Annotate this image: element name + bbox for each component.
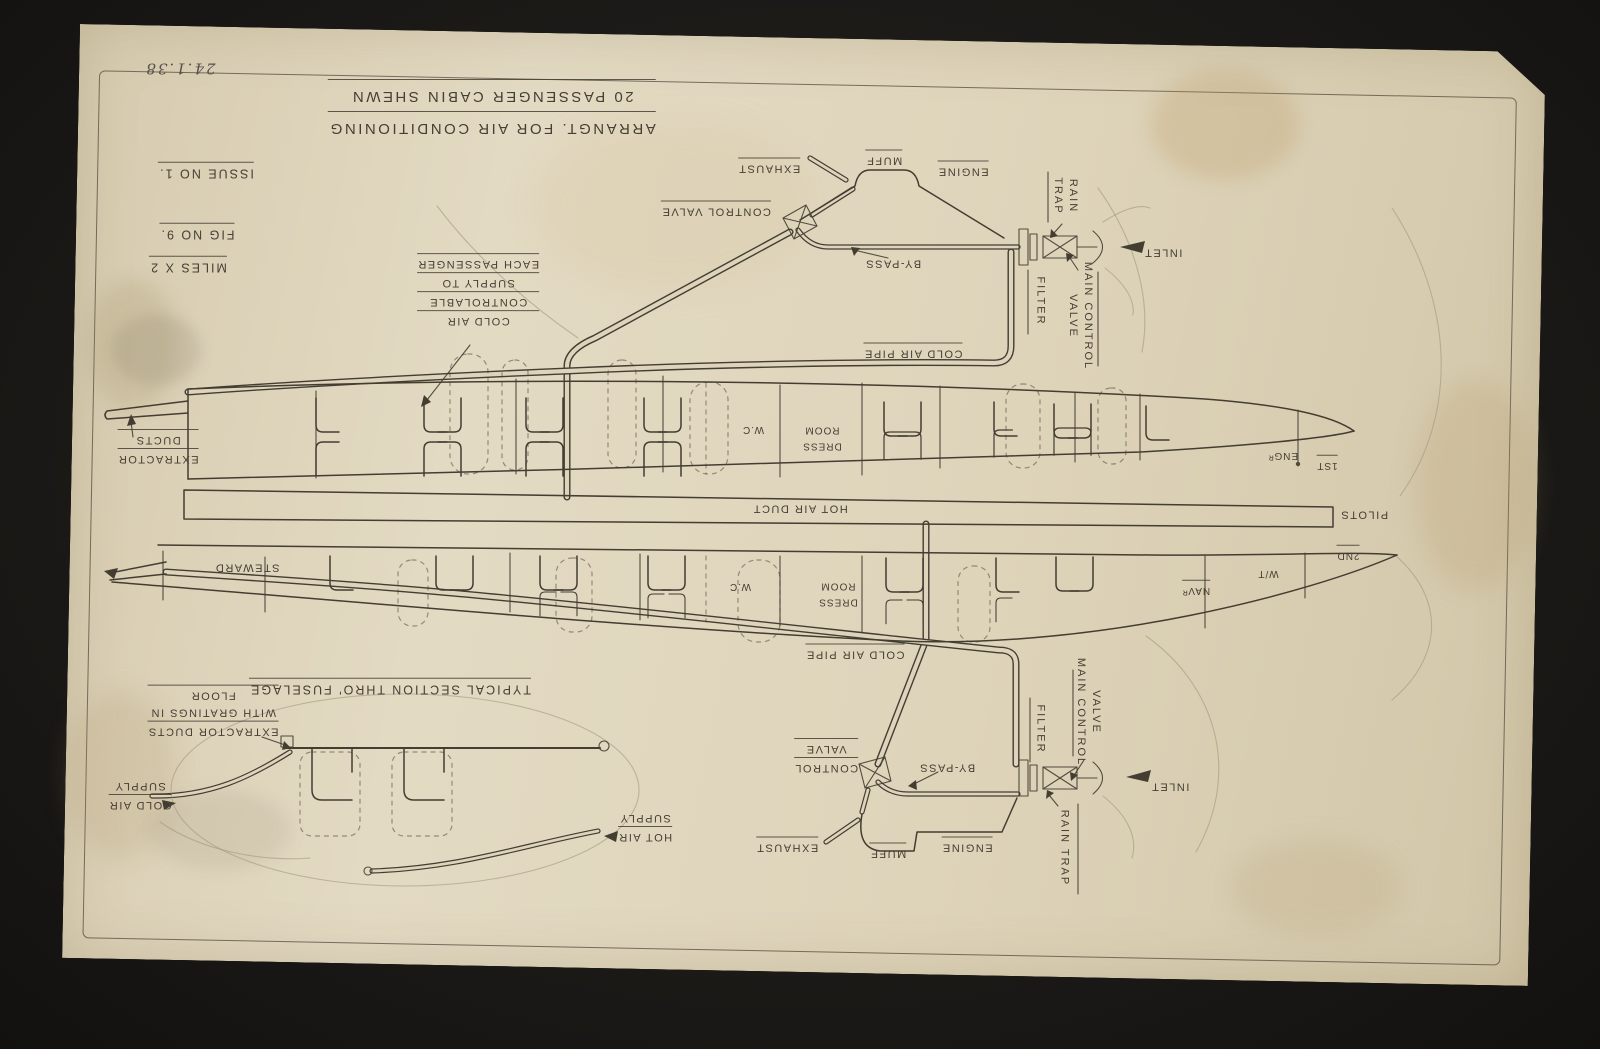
bypass-arrow-bottom [908,780,917,790]
label-inlet-top: INLET [1144,243,1183,260]
label-by-pass-top: BY-PASS [865,254,921,271]
label-cold-air-pipe-top: COLD AIR PIPE [864,342,963,361]
label-control-valve-top: CONTROL VALVE [661,200,771,219]
label-navigator: NAVᴿ [1182,580,1210,598]
extractor-arrow-upper [127,414,136,426]
leader-lines [131,172,1098,894]
issue-number: ISSUE NO 1. [158,161,254,182]
label-control-valve-bottom: CONTROL VALVE [794,738,858,776]
extractor-arrow-lower [104,568,118,579]
inlet-arrow-top [1120,241,1145,253]
label-dress-room-upper: DRESS ROOM [802,423,841,454]
title-line2: 20 PASSENGER CABIN SHEWN [328,79,656,111]
fig-no-text: FIG NO 9. [160,222,235,243]
label-extractor-ducts: EXTRACTOR DUCTS [117,429,198,467]
scale-note: MILES X 2 [149,255,227,276]
label-steward: STEWARD [214,558,279,575]
label-dress-room-lower: DRESS ROOM [818,579,857,610]
section-hot-air-arrow [604,831,618,842]
label-pilots: PILOTS [1340,505,1388,522]
rain-trap-arrow-bottom [1046,790,1054,799]
issue-no-text: ISSUE NO 1. [158,161,254,182]
label-by-pass-bottom: BY-PASS [919,758,975,775]
label-engineer: ENGᴿ [1268,447,1298,463]
label-cold-air-note: COLD AIR CONTROLABLE SUPPLY TO EACH PASS… [417,253,539,329]
photographed-drawing: { "photo": { "date_note": "24.1.38" }, "… [0,0,1600,1049]
label-engine-top: ENGINE [937,160,988,179]
label-section-hot-air: HOT AIR SUPPLY [618,809,672,845]
label-hot-air-duct: HOT AIR DUCT [752,499,847,516]
date-note-text: 24.1.38 [144,56,215,79]
label-filter-top: FILTER [1033,276,1048,325]
handwritten-date: 24.1.38 [144,56,215,79]
label-muff-bottom: MUFF [870,842,907,861]
label-wireless: W/T [1257,565,1278,581]
label-rain-trap-top: RAIN TRAP [1050,177,1080,214]
label-exhaust-top: EXHAUST [738,157,800,176]
label-cold-air-pipe-lower: COLD AIR PIPE [806,643,905,662]
label-main-control-valve-bottom: VALVE MAIN CONTROL [1073,658,1103,766]
label-section-cold-air: COLD AIR SUPPLY [108,777,171,813]
label-wc-lower: W.C [729,578,751,594]
label-engine-bottom: ENGINE [941,836,992,855]
label-filter-bottom: FILTER [1033,704,1048,753]
lower-fuselage-seats [330,556,1093,624]
scale-note-text: MILES X 2 [149,255,227,276]
label-main-control-valve-top: MAIN CONTROL VALVE [1065,262,1095,370]
figure-number: FIG NO 9. [160,222,235,243]
upper-fuselage-outline [105,381,1354,479]
inlet-arrow-bottom [1126,770,1151,782]
label-first-class: 1ST [1316,455,1337,473]
label-rain-trap-bottom: RAIN TRAP [1057,810,1072,886]
title-line1: ARRANGT. FOR AIR CONDITIONING [328,111,656,143]
drawing-title: ARRANGT. FOR AIR CONDITIONING 20 PASSENG… [328,79,656,143]
label-exhaust-bottom: EXHAUST [756,836,818,855]
label-second-class: 2ND [1336,545,1359,563]
label-inlet-bottom: INLET [1151,777,1190,794]
label-section-extractor-note: EXTRACTOR DUCTS WITH GRATINGS IN FLOOR [147,684,278,739]
label-wc-upper: W.C [742,421,764,437]
label-muff-top: MUFF [866,149,903,168]
control-valve-symbol-bottom [859,757,891,788]
main-control-valve-fitting-top [1019,229,1103,265]
label-section-caption: TYPICAL SECTION THRO' FUSELAGE [249,677,531,698]
